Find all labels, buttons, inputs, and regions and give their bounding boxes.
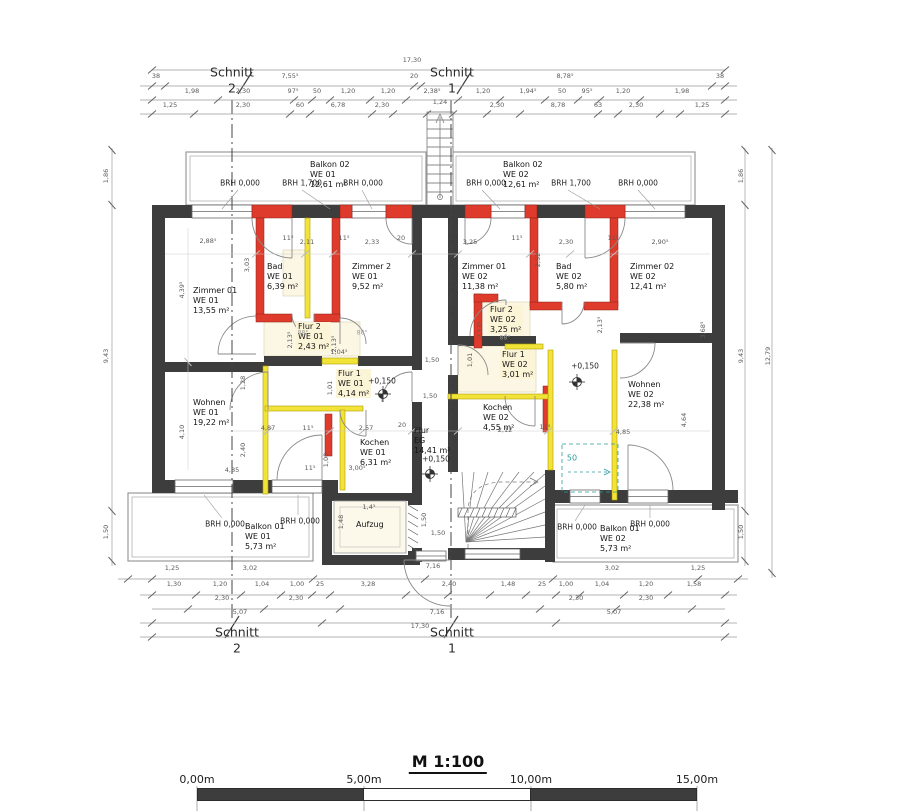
dimension-label: 2,30 <box>289 594 303 602</box>
room-label: Balkon 02 WE 02 12,61 m² <box>503 160 543 189</box>
sill-height-label: BRH 0,000 <box>220 179 260 188</box>
dimension-label: 1,86 <box>737 169 745 183</box>
room-label: Flur EG 14,41 m² <box>414 426 450 455</box>
level-mark-label: +0,150 <box>571 362 599 371</box>
section-label-bottom-1-word: Schnitt <box>430 625 474 640</box>
room-label: Zimmer 02 WE 02 12,41 m² <box>630 262 674 291</box>
dimension-label: 5,07 <box>607 608 621 616</box>
dimension-label: 1,50 <box>423 392 437 400</box>
room-label: Aufzug <box>356 520 384 530</box>
dimension-label: 3,28 <box>361 580 375 588</box>
exterior-stair <box>427 112 453 205</box>
dimension-label: 8,78⁵ <box>556 72 573 80</box>
dimension-label: 11⁵ <box>283 234 294 242</box>
dimension-label: 1,00 <box>290 580 304 588</box>
dimension-label: 2,33 <box>365 238 379 246</box>
dimension-label: 12,79 <box>764 347 772 366</box>
dimension-label: 20 <box>410 72 418 80</box>
dimension-label: 9,43 <box>737 349 745 363</box>
dimension-label: 2,38⁵ <box>423 87 440 95</box>
dimension-label: 1,20 <box>476 87 490 95</box>
windows <box>175 205 685 561</box>
dimension-label: 1,30 <box>167 580 181 588</box>
dimension-label: 7,55⁵ <box>281 72 298 80</box>
dimension-label: 1,48 <box>337 515 345 529</box>
dimension-label: 4,85 <box>225 466 239 474</box>
winder-stair <box>458 472 545 548</box>
section-label-top-2-word: Schnitt <box>210 65 254 80</box>
dimension-label: 2,30 <box>236 101 250 109</box>
dimension-label: 60 <box>296 101 304 109</box>
dimension-label: 2,90⁵ <box>651 238 668 246</box>
dimension-label: 25 <box>538 580 546 588</box>
dimension-label: 20 <box>398 421 406 429</box>
dimension-label: 2,57 <box>359 424 373 432</box>
room-label: Flur 1 WE 02 3,01 m² <box>500 350 535 379</box>
dimension-label: 4,64 <box>680 413 688 427</box>
scale-bar-segment-light <box>363 789 530 800</box>
dimension-label: 88° <box>357 330 368 337</box>
dimension-label: 3,03 <box>243 258 251 272</box>
floor-plan: Zimmer 01 WE 01 13,55 m² Bad WE 01 6,39 … <box>0 0 900 812</box>
room-label: Flur 2 WE 01 2,43 m² <box>296 322 331 351</box>
scale-bar-segment-dark1 <box>198 789 363 800</box>
dimension-label: 1,20 <box>616 87 630 95</box>
plan-linework <box>0 0 900 812</box>
dimension-label: 2,11 <box>300 238 314 246</box>
dimension-label: 1,00 <box>559 580 573 588</box>
room-label: Bad WE 02 5,80 m² <box>556 262 587 291</box>
dimension-label: 1,01 <box>326 381 334 395</box>
dimension-label: 1,86 <box>102 169 110 183</box>
dimension-label: 17,30 <box>403 56 422 64</box>
dimension-label: 11⁵ <box>305 464 316 472</box>
dimension-label: 1,58 <box>687 580 701 588</box>
section-label-bottom-2-num: 2 <box>233 641 241 656</box>
dimension-label: 3,00⁵ <box>348 464 365 472</box>
dimension-label: 2,13⁵ <box>286 331 294 348</box>
dimension-label: 97⁵ <box>288 87 299 95</box>
room-label: Zimmer 2 WE 01 9,52 m² <box>352 262 391 291</box>
dimension-label: 6,78 <box>331 101 345 109</box>
dimension-label: 9,43 <box>102 349 110 363</box>
scale-label-5: 5,00m <box>346 773 381 786</box>
dimension-label: 25 <box>316 580 324 588</box>
dimension-label: 11⁵ <box>540 423 551 431</box>
dimension-label: 2,30 <box>639 594 653 602</box>
scale-bar-segment-dark2 <box>531 789 696 800</box>
dimension-label: 50 <box>558 87 566 95</box>
dimension-label: 1,00 <box>322 453 330 467</box>
dimension-label: 2,30 <box>569 594 583 602</box>
dimension-label: 2,12 <box>498 426 512 434</box>
dimension-label: 2,30 <box>490 101 504 109</box>
dimension-label: 2,30 <box>215 594 229 602</box>
misc-label: 50 <box>567 454 577 463</box>
section-label-bottom-2-word: Schnitt <box>215 625 259 640</box>
dimension-label: 2,30 <box>559 238 573 246</box>
section-label-top-2-num: 2 <box>228 81 236 96</box>
teal-annotation-box <box>562 444 618 492</box>
dimension-label: 3,02 <box>243 564 257 572</box>
room-label: Kochen WE 01 6,31 m² <box>360 438 391 467</box>
room-label: Zimmer 01 WE 01 13,55 m² <box>193 286 237 315</box>
dimension-label: 1,50 <box>431 529 445 537</box>
level-mark-label: +0,150 <box>422 455 450 464</box>
dimension-label: 38 <box>152 72 160 80</box>
room-label: Bad WE 01 6,39 m² <box>267 262 298 291</box>
scale-title: M 1:100 <box>409 752 487 774</box>
dimension-label: 1,25 <box>165 564 179 572</box>
dimension-label: 2,30 <box>629 101 643 109</box>
dimension-label: 63 <box>594 101 602 109</box>
dimension-label: 38 <box>716 72 724 80</box>
room-label: Wohnen WE 01 19,22 m² <box>193 398 229 427</box>
dimension-label: 3,02 <box>605 564 619 572</box>
dimension-label: 1,50 <box>425 356 439 364</box>
dimension-label: 20 <box>397 234 405 242</box>
dimension-label: 1,20 <box>639 580 653 588</box>
dimension-label: 1,20 <box>341 87 355 95</box>
sill-height-label: BRH 0,000 <box>466 179 506 188</box>
dimension-label: 7,16 <box>426 562 440 570</box>
dimension-label: 11⁵ <box>608 234 619 242</box>
dimension-label: 1,01 <box>466 353 474 367</box>
dimension-label: 2,40 <box>239 443 247 457</box>
dimension-label: 1,48 <box>501 580 515 588</box>
sill-height-label: BRH 0,000 <box>205 520 245 529</box>
dimension-label: 1,50 <box>102 525 110 539</box>
dimension-label: 1,50 <box>737 525 745 539</box>
dimension-label: 1,98 <box>185 87 199 95</box>
dimension-label: 95⁵ <box>582 87 593 95</box>
scale-label-10: 10,00m <box>510 773 552 786</box>
dimension-label: 4,39⁵ <box>178 281 186 298</box>
dimension-label: 3,68⁵ <box>699 321 707 338</box>
dimension-label: 7,16 <box>430 608 444 616</box>
dimension-label: 5,07 <box>233 608 247 616</box>
dimension-label: 11⁵ <box>512 234 523 242</box>
dimension-label: 1,98 <box>675 87 689 95</box>
scale-label-0: 0,00m <box>179 773 214 786</box>
sill-height-label: BRH 0,000 <box>557 523 597 532</box>
dimension-label: 4,87 <box>261 424 275 432</box>
dimension-label: 1,50 <box>420 513 428 527</box>
scale-label-15: 15,00m <box>676 773 718 786</box>
dimension-label: 88° <box>298 330 309 337</box>
dimension-label: 1,20 <box>381 87 395 95</box>
dimension-label: 4,10 <box>178 425 186 439</box>
sill-height-label: BRH 1,700 <box>282 179 322 188</box>
level-mark-label: +0,150 <box>368 377 396 386</box>
dimension-label: 1,04 <box>255 580 269 588</box>
room-label: Flur 1 WE 01 4,14 m² <box>336 369 371 398</box>
dimension-label: 50 <box>313 87 321 95</box>
room-label: Zimmer 01 WE 02 11,38 m² <box>462 262 506 291</box>
sill-height-label: BRH 1,700 <box>551 179 591 188</box>
dimension-label: 2,30 <box>375 101 389 109</box>
dimension-label: 2,88⁵ <box>199 237 216 245</box>
dimension-label: 1,20 <box>213 580 227 588</box>
dimension-label: 1,24 <box>433 98 447 106</box>
dimension-label: 3,25 <box>463 238 477 246</box>
dimension-label: 2,30 <box>236 87 250 95</box>
section-label-top-1-num: 1 <box>448 81 456 96</box>
dimension-label: 2,13⁵ <box>330 335 338 352</box>
dimension-label: 1,25 <box>691 564 705 572</box>
dimension-label: 1,25 <box>695 101 709 109</box>
dimension-label: 1,04 <box>595 580 609 588</box>
sill-height-label: BRH 0,000 <box>343 179 383 188</box>
dimension-label: 1,25 <box>163 101 177 109</box>
sill-height-label: BRH 0,000 <box>280 517 320 526</box>
dimension-label: 1,94⁵ <box>519 87 536 95</box>
dimension-label: 2,13⁵ <box>476 321 484 338</box>
room-label: Balkon 01 WE 01 5,73 m² <box>245 522 285 551</box>
sill-height-label: BRH 0,000 <box>630 520 670 529</box>
dimension-label: 17,30 <box>411 622 430 630</box>
dimension-label: 11⁵ <box>339 234 350 242</box>
dimension-label: 1,28 <box>239 376 247 390</box>
section-label-top-1-word: Schnitt <box>430 65 474 80</box>
dimension-label: 2,13⁵ <box>596 316 604 333</box>
dimension-label: 4,85 <box>616 428 630 436</box>
dimension-label: 88° <box>500 335 511 342</box>
room-label: Flur 2 WE 02 3,25 m² <box>488 305 523 334</box>
sill-height-label: BRH 0,000 <box>618 179 658 188</box>
scale-bar <box>197 788 697 801</box>
dimension-label: 2,40 <box>442 580 456 588</box>
dimension-label: 11⁵ <box>303 424 314 432</box>
dimension-label: 2,52 <box>534 253 542 267</box>
dimension-label: 1,4⁵ <box>363 503 376 511</box>
dimension-label: 8,78 <box>551 101 565 109</box>
section-label-bottom-1-num: 1 <box>448 641 456 656</box>
room-label: Wohnen WE 02 22,38 m² <box>628 380 664 409</box>
